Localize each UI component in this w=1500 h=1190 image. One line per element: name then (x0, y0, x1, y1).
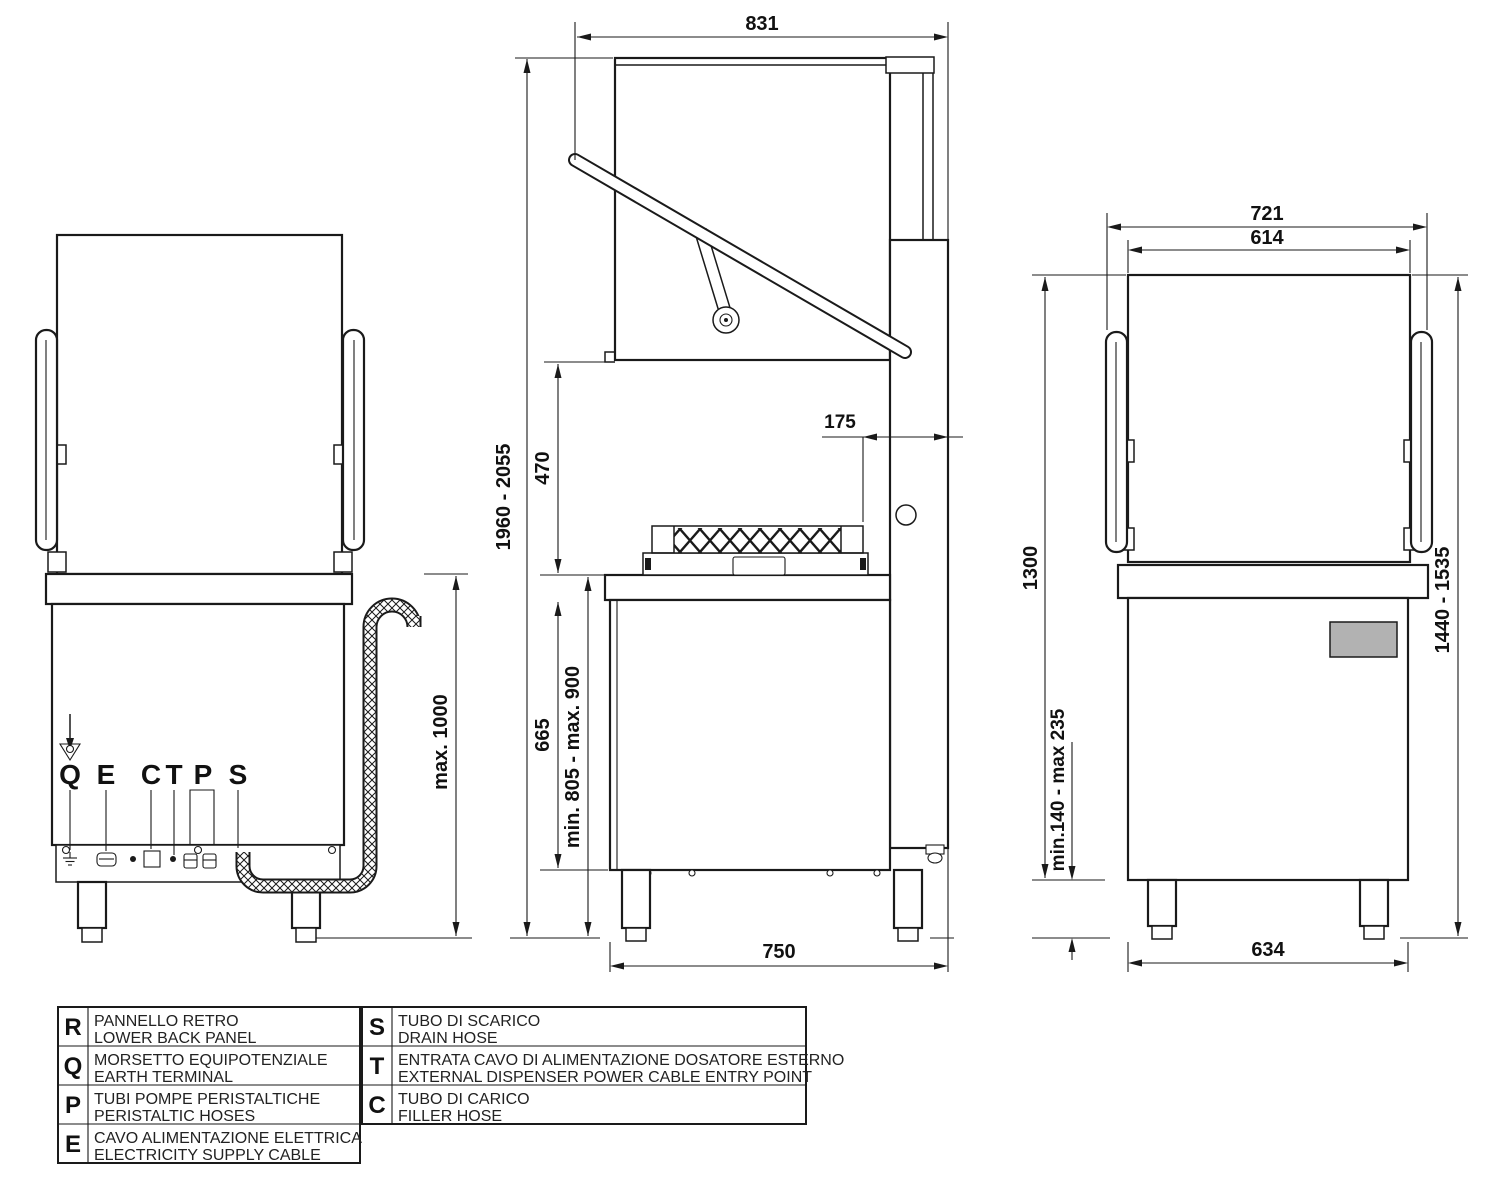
dim-label-175: 175 (824, 412, 856, 433)
dish-rack (652, 526, 863, 553)
side-base (610, 600, 890, 870)
callout-supply-cable: E (97, 759, 116, 790)
dim-leg-height: min.140 - max 235 (1048, 708, 1076, 960)
dim-hood-lift: 470 (532, 362, 612, 575)
legend-q-line1: MORSETTO EQUIPOTENZIALE (94, 1052, 328, 1069)
handle-pivot (713, 307, 739, 333)
back-tower (890, 240, 948, 848)
legend-key-t: T (370, 1053, 385, 1080)
dim-height-total: 1960 - 2055 (493, 58, 613, 936)
callout-drain-hose: S (229, 759, 248, 790)
legend-key-q: Q (64, 1053, 83, 1080)
dim-label-140-235: min.140 - max 235 (1048, 708, 1069, 871)
dim-label-750: 750 (762, 941, 795, 963)
legend-key-s: S (369, 1014, 385, 1041)
technical-drawing-page: Q E C T P S max. 1000 (0, 0, 1500, 1190)
entry-dot (130, 856, 136, 862)
legend-p-line2: PERISTALTIC HOSES (94, 1108, 255, 1125)
dim-hood-width: 614 (1128, 227, 1410, 273)
legend-c-line2: FILLER HOSE (398, 1108, 502, 1125)
dim-base-width: 634 (1032, 938, 1468, 972)
dim-label-470: 470 (532, 451, 554, 484)
side-view: 831 1960 - 2055 470 665 (493, 13, 963, 972)
legend-key-r: R (64, 1014, 81, 1041)
callout-filler-hose: C (141, 759, 161, 790)
dim-label-831: 831 (745, 13, 778, 35)
hood-top-cap (886, 57, 934, 73)
legend-key-p: P (65, 1092, 81, 1119)
hood-knob (896, 505, 916, 525)
legend-key-e: E (65, 1131, 81, 1158)
back-fitting (926, 845, 944, 863)
legend-r-line1: PANNELLO RETRO (94, 1013, 239, 1030)
base-bolt (827, 870, 833, 876)
callout-peristaltic: P (194, 759, 213, 790)
legend-key-c: C (368, 1092, 385, 1119)
dim-worktop-height: min. 805 - max. 900 (562, 577, 592, 936)
legend-p-line1: TUBI POMPE PERISTALTICHE (94, 1091, 320, 1108)
legend-q-line2: EARTH TERMINAL (94, 1069, 233, 1086)
rack-tray (643, 553, 868, 575)
filler-hose-entry (144, 851, 160, 867)
dim-label-1440-1535: 1440 - 1535 (1432, 547, 1454, 654)
dim-label-614: 614 (1250, 227, 1284, 249)
legend-t-line1: ENTRATA CAVO DI ALIMENTAZIONE DOSATORE E… (398, 1052, 844, 1069)
side-worktop (605, 575, 890, 600)
legend-table: R PANNELLO RETRO LOWER BACK PANEL Q MORS… (58, 1007, 844, 1164)
legend-s-line2: DRAIN HOSE (398, 1030, 498, 1047)
legend-r-line2: LOWER BACK PANEL (94, 1030, 257, 1047)
callout-dispenser-entry: T (165, 759, 182, 790)
legend-e-line1: CAVO ALIMENTAZIONE ELETTRICA (94, 1130, 362, 1147)
dim-label-665: 665 (532, 718, 554, 751)
dim-label-1300: 1300 (1020, 546, 1042, 591)
dim-label-1960-2055: 1960 - 2055 (493, 444, 515, 551)
base-bolt (689, 870, 695, 876)
dispenser-cable-entry (170, 856, 176, 862)
leg (1148, 880, 1388, 939)
base-bolt (874, 870, 880, 876)
front-worktop (1118, 565, 1428, 598)
back-base (52, 604, 344, 845)
back-view: Q E C T P S max. 1000 (36, 235, 472, 942)
front-hood (1128, 275, 1410, 562)
handle-tab (334, 552, 352, 572)
legend-c-line1: TUBO DI CARICO (398, 1091, 530, 1108)
back-worktop (46, 574, 352, 604)
handle-tab (48, 552, 66, 572)
front-view: 721 614 1300 min.140 - max 235 (1020, 203, 1468, 972)
legend-t-line2: EXTERNAL DISPENSER POWER CABLE ENTRY POI… (398, 1069, 812, 1086)
rating-plate (1330, 622, 1397, 657)
callout-earth-terminal: Q (59, 759, 81, 790)
dim-label-805-900: min. 805 - max. 900 (562, 666, 584, 848)
dim-label-634: 634 (1251, 939, 1285, 961)
back-hood (57, 235, 342, 574)
dim-label-721: 721 (1250, 203, 1283, 225)
leg (622, 870, 922, 941)
legend-s-line1: TUBO DI SCARICO (398, 1013, 540, 1030)
legend-e-line2: ELECTRICITY SUPPLY CABLE (94, 1147, 321, 1164)
dim-label-max-1000: max. 1000 (430, 694, 452, 790)
